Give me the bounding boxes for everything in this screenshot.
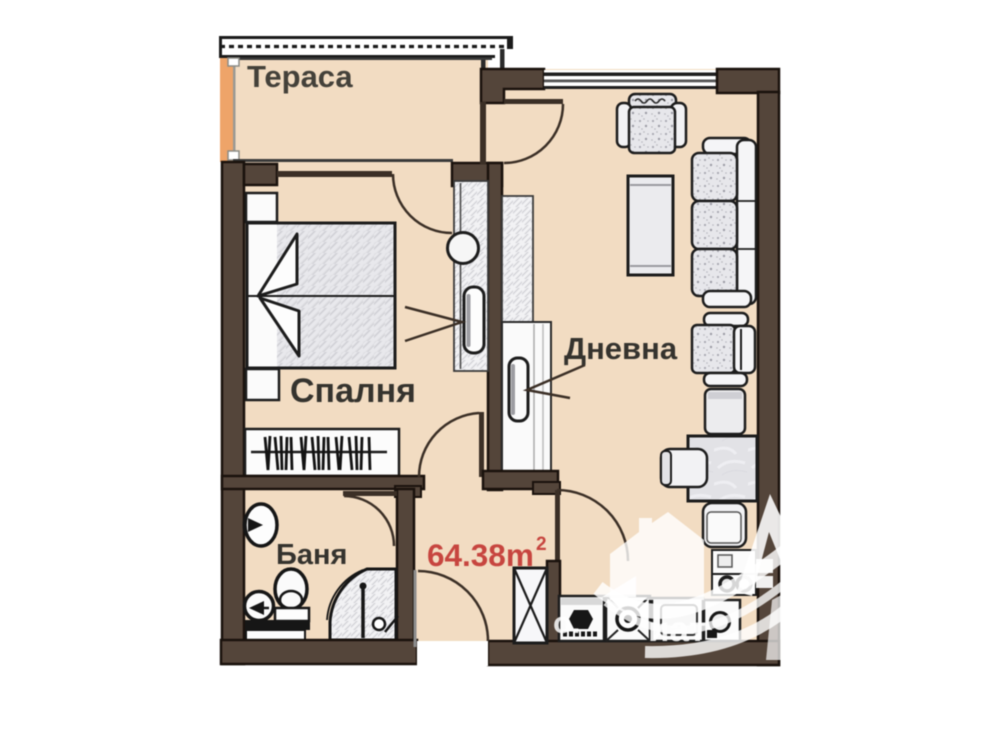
svg-text:о.: о. <box>553 605 581 640</box>
svg-text:Баня: Баня <box>276 539 347 571</box>
svg-text:иат: иат <box>648 610 706 649</box>
svg-text:Дневна: Дневна <box>564 331 678 366</box>
svg-text:2: 2 <box>536 534 547 555</box>
svg-text:Спалня: Спалня <box>290 372 416 410</box>
svg-text:Тераса: Тераса <box>247 59 353 94</box>
